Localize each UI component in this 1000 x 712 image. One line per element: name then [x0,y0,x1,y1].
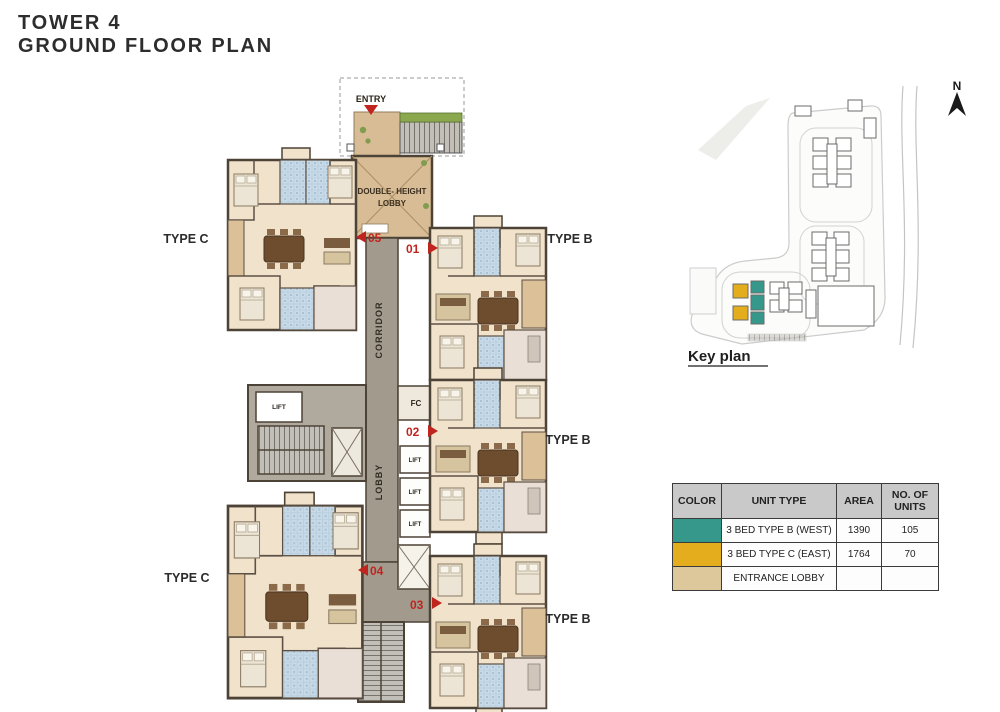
unit-type-c-bottom [228,492,362,698]
double-height-lobby: DOUBLE- HEIGHT LOBBY [352,156,432,238]
lift-3-label: LIFT [409,522,422,528]
service-core-right: FC LIFT LIFT LIFT [398,386,434,589]
legend-row-type-c: 3 BED TYPE C (EAST) 1764 70 [673,543,939,567]
road-line [900,86,905,345]
service-core-left: LIFT [248,385,366,481]
unit-type-c-top [228,148,356,330]
legend-area: 1764 [837,543,882,567]
svg-text:02: 02 [406,425,420,439]
north-label: N [953,79,962,93]
legend-area [837,567,882,591]
legend-area: 1390 [837,519,882,543]
type-label-b-bottom: TYPE B [545,612,590,626]
type-label-c-top: TYPE C [163,232,208,246]
legend-header-area: AREA [837,484,882,519]
type-label-b-middle: TYPE B [545,433,590,447]
lift-2-label: LIFT [409,490,422,496]
corridor-label: CORRIDOR [374,302,384,359]
legend-unit-type: 3 BED TYPE B (WEST) [722,519,837,543]
legend-header-unit-type: UNIT TYPE [722,484,837,519]
key-plan: Key plan [688,86,918,366]
north-arrow-icon: N [948,79,966,116]
svg-text:03: 03 [410,598,424,612]
entry-steps [400,122,462,153]
lift-left-label: LIFT [272,404,286,411]
legend-unit-type: ENTRANCE LOBBY [722,567,837,591]
stairs-bottom [358,622,404,702]
lobby-room-label-1: DOUBLE- HEIGHT [358,187,427,196]
legend-swatch-teal [673,519,722,543]
legend-units [882,567,939,591]
lobby-room-label-2: LOBBY [378,199,407,208]
type-label-b-top: TYPE B [547,232,592,246]
svg-text:01: 01 [406,242,420,256]
legend-row-entrance-lobby: ENTRANCE LOBBY [673,567,939,591]
legend-row-type-b: 3 BED TYPE B (WEST) 1390 105 [673,519,939,543]
legend-table: COLOR UNIT TYPE AREA NO. OF UNITS 3 BED … [672,483,939,591]
legend-unit-type: 3 BED TYPE C (EAST) [722,543,837,567]
road-line [913,86,918,348]
entry-label: ENTRY [356,94,386,104]
legend-units: 105 [882,519,939,543]
svg-text:05: 05 [368,231,382,245]
unit-type-b-middle [430,368,546,544]
svg-text:04: 04 [370,564,384,578]
legend-header-units: NO. OF UNITS [882,484,939,519]
legend-swatch-tan [673,567,722,591]
fc-label: FC [411,399,422,408]
key-plan-label: Key plan [688,348,751,365]
entry-canopy [400,113,462,122]
lobby-label: LOBBY [374,464,384,501]
lift-1-label: LIFT [409,458,422,464]
floor-plan-canvas: ENTRY DOUBLE- HEIGHT LOBBY CORRIDOR LOBB… [0,0,1000,712]
legend-swatch-gold [673,543,722,567]
legend-header-color: COLOR [673,484,722,519]
legend-units: 70 [882,543,939,567]
entry-area: ENTRY [340,78,464,158]
floor-plan: ENTRY DOUBLE- HEIGHT LOBBY CORRIDOR LOBB… [163,78,592,712]
type-label-c-bottom: TYPE C [164,571,209,585]
unit-type-b-top [430,216,546,392]
unit-type-b-bottom [430,544,546,712]
